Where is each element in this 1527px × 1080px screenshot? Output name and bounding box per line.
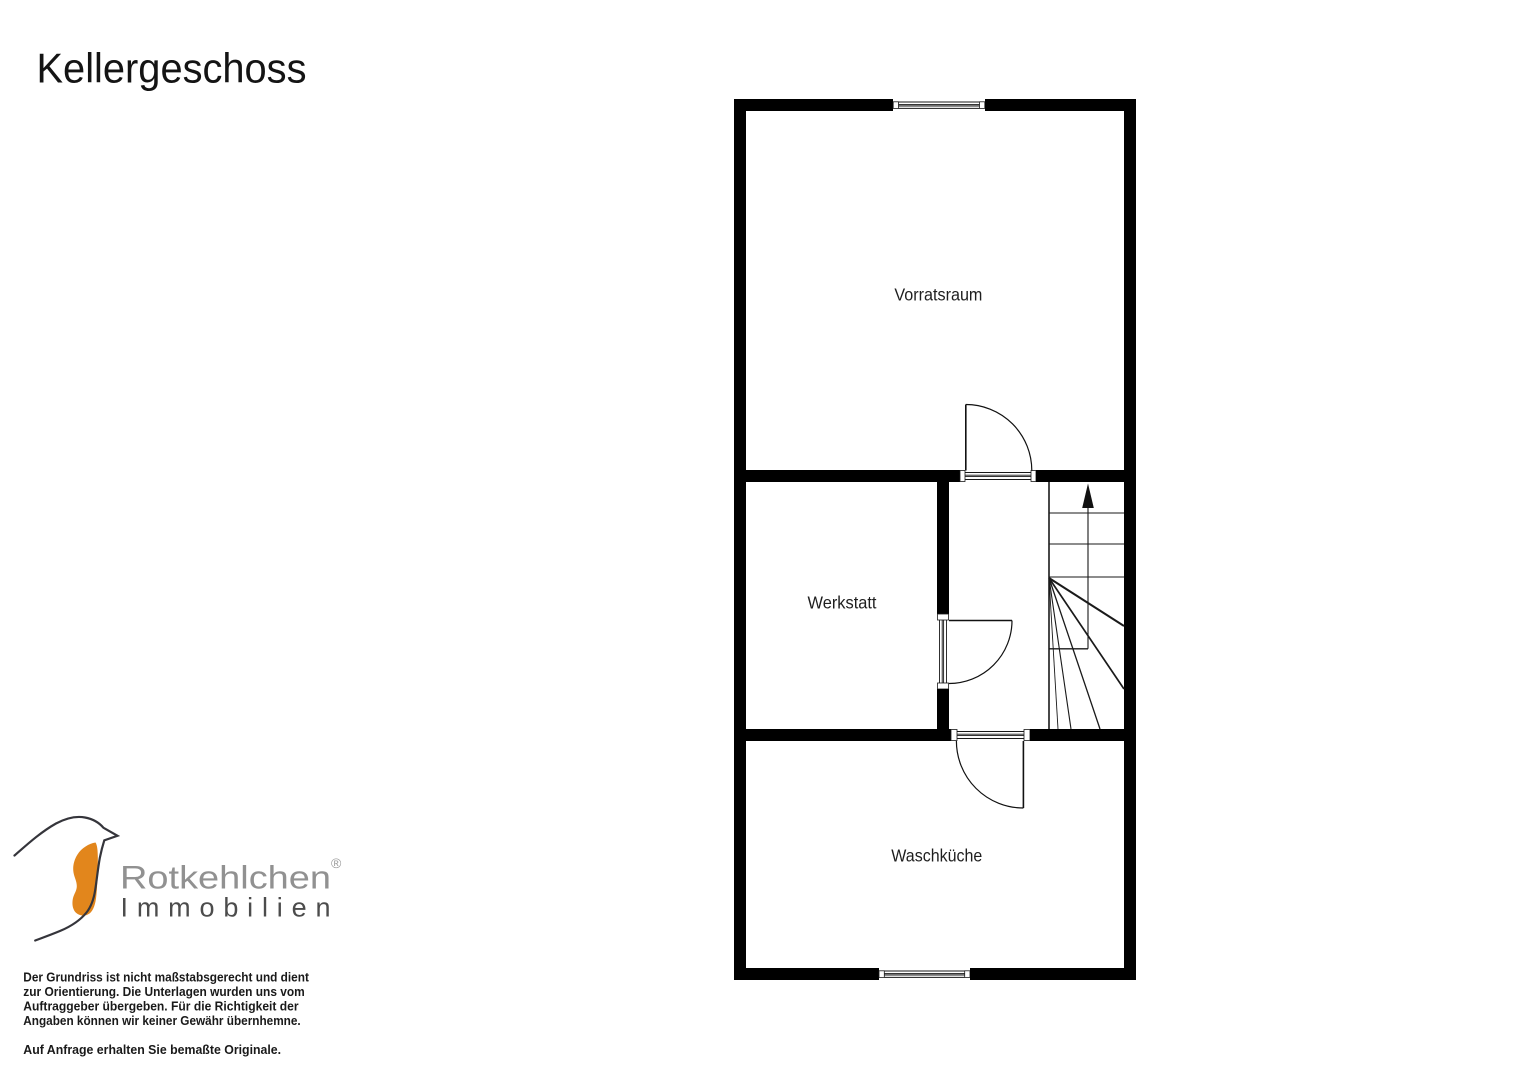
svg-text:Auftraggeber übergeben. Für di: Auftraggeber übergeben. Für die Richtigk…: [23, 999, 298, 1014]
svg-text:Rotkehlchen: Rotkehlchen: [120, 860, 331, 896]
svg-text:Vorratsraum: Vorratsraum: [894, 285, 982, 305]
svg-text:Immobilien: Immobilien: [121, 893, 331, 923]
svg-text:Auf Anfrage erhalten Sie bemaß: Auf Anfrage erhalten Sie bemaßte Origina…: [23, 1042, 281, 1057]
svg-text:Werkstatt: Werkstatt: [808, 593, 877, 613]
svg-text:Angaben können wir keiner Gewä: Angaben können wir keiner Gewähr übernhe…: [23, 1013, 300, 1028]
svg-text:Waschküche: Waschküche: [891, 846, 982, 866]
svg-text:zur Orientierung. Die Unterlag: zur Orientierung. Die Unterlagen wurden …: [23, 984, 305, 999]
svg-text:Kellergeschoss: Kellergeschoss: [37, 45, 307, 92]
svg-text:®: ®: [331, 855, 342, 871]
svg-text:Der Grundriss ist nicht maßsta: Der Grundriss ist nicht maßstabsgerecht …: [23, 970, 309, 985]
